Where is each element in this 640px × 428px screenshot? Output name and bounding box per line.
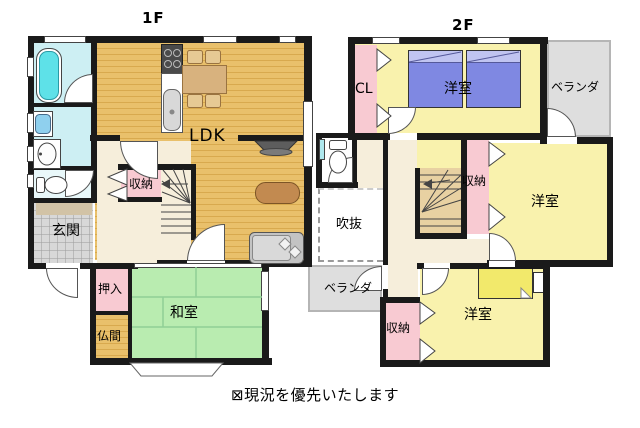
label-shuno-1f: 収納 bbox=[129, 178, 153, 190]
label-bedroom-right: 洋室 bbox=[531, 195, 559, 209]
label-shuno-2f-mid: 収納 bbox=[462, 175, 486, 187]
stairs-1f bbox=[161, 169, 191, 233]
disclaimer-note: ⊠現況を優先いたします bbox=[231, 388, 399, 403]
kitchen-sink-icon bbox=[162, 74, 183, 133]
toilet-2f-icon bbox=[330, 141, 347, 174]
label-shuno-2f-btm: 収納 bbox=[386, 322, 410, 334]
tv-icon bbox=[255, 141, 297, 156]
bathtub-icon bbox=[37, 49, 62, 103]
label-bedroom-top: 洋室 bbox=[444, 82, 472, 96]
dining-table-icon bbox=[183, 51, 227, 108]
label-veranda-top: ベランダ bbox=[551, 81, 599, 93]
label-butsuma: 仏間 bbox=[97, 330, 121, 342]
label-oshiire: 押入 bbox=[98, 283, 122, 295]
washing-machine-icon bbox=[34, 112, 53, 137]
fixtures-layer bbox=[0, 0, 640, 428]
stairs-2f bbox=[420, 170, 461, 226]
sofa-icon bbox=[250, 233, 304, 264]
wash-basin-icon bbox=[34, 140, 61, 169]
coffee-table-icon bbox=[256, 183, 300, 204]
toilet-icon bbox=[37, 177, 68, 194]
floor2-title: 2F bbox=[452, 18, 475, 33]
label-washitsu: 和室 bbox=[170, 306, 198, 320]
label-cl: CL bbox=[355, 82, 373, 96]
floor1-title: 1F bbox=[142, 11, 165, 26]
label-fukinuke: 吹抜 bbox=[336, 218, 362, 231]
label-ldk: LDK bbox=[189, 128, 226, 145]
floorplan-canvas: 1F 2F LDK 収納 玄関 押入 和室 仏間 CL 洋室 ベランダ 収納 洋… bbox=[0, 0, 640, 428]
label-veranda-bottom: ベランダ bbox=[324, 282, 372, 294]
bay-window-icon bbox=[130, 363, 223, 376]
label-bedroom-bottom: 洋室 bbox=[464, 308, 492, 322]
label-genkan: 玄関 bbox=[52, 224, 80, 238]
kitchen-stove-icon bbox=[162, 45, 183, 74]
